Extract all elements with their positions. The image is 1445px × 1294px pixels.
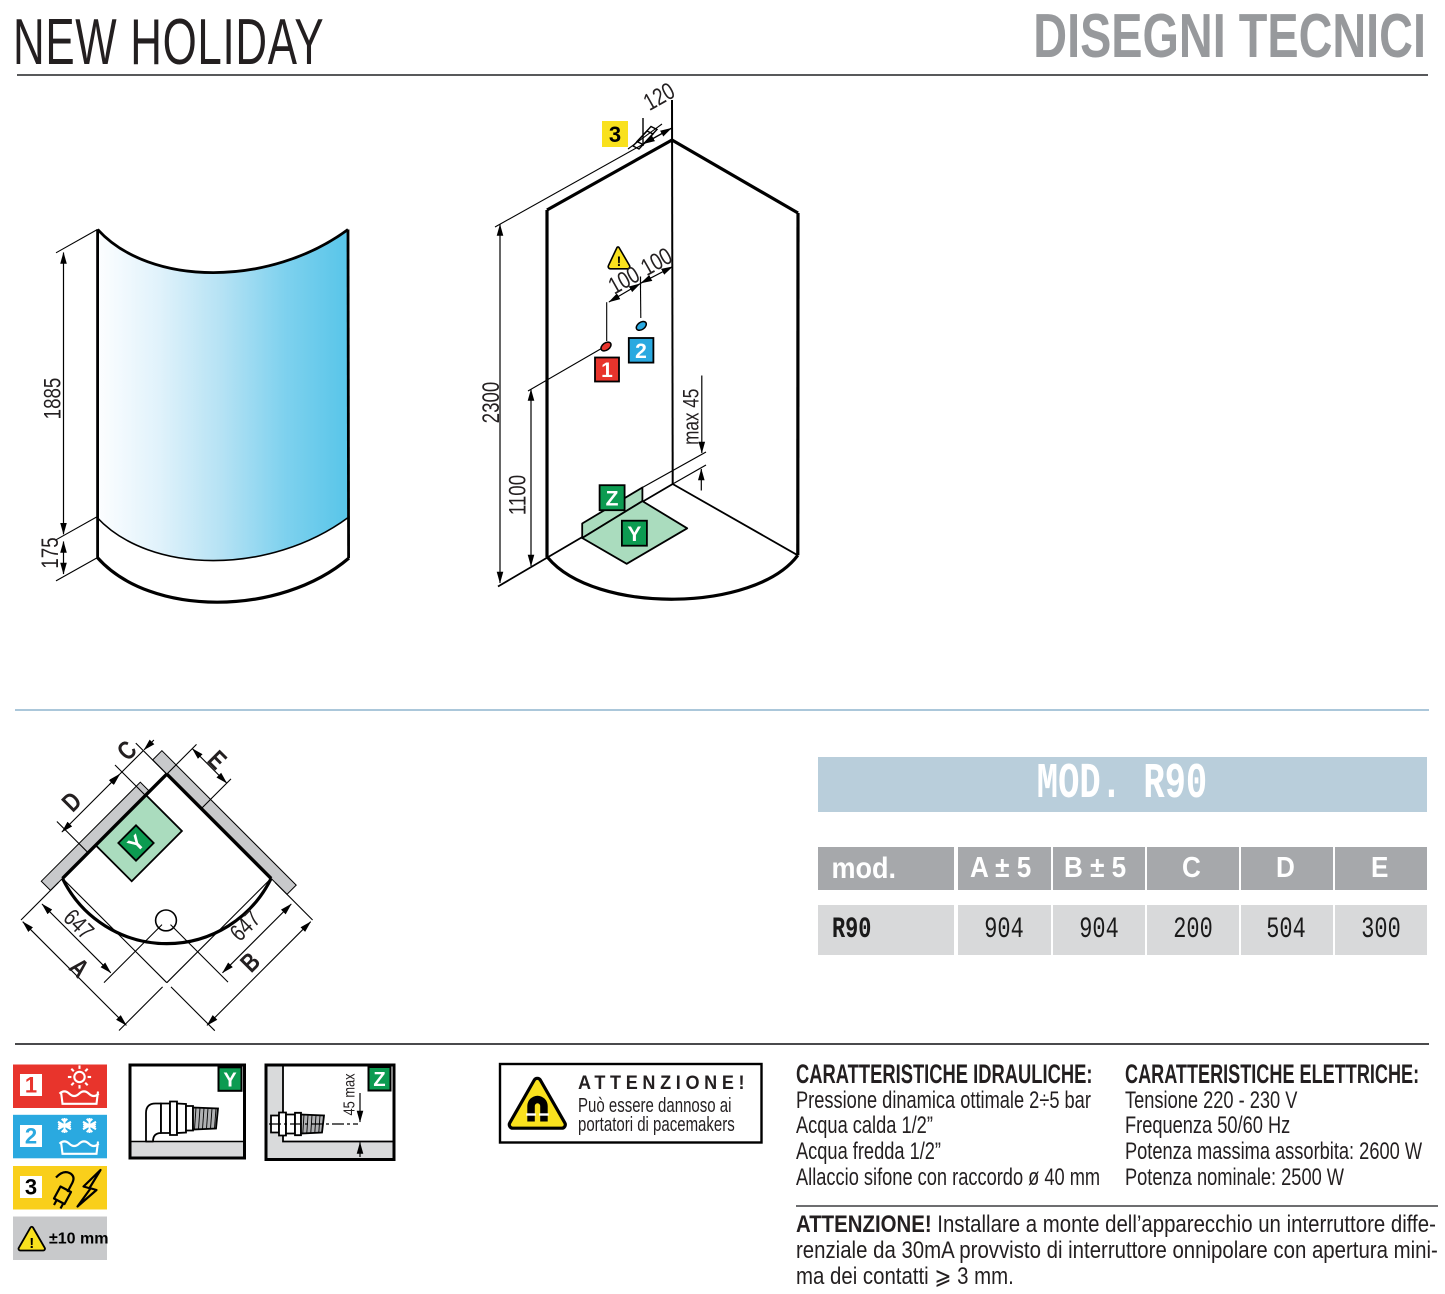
svg-text:1: 1 bbox=[25, 1073, 37, 1098]
svg-text:3: 3 bbox=[25, 1175, 37, 1200]
svg-text:1885: 1885 bbox=[39, 378, 66, 420]
svg-text:Y: Y bbox=[223, 1070, 237, 1092]
svg-text:45 max: 45 max bbox=[341, 1073, 359, 1116]
svg-text:3: 3 bbox=[609, 122, 621, 147]
svg-text:Y: Y bbox=[627, 523, 641, 546]
svg-text:B: B bbox=[235, 947, 266, 978]
svg-text:647: 647 bbox=[58, 904, 99, 945]
svg-text:Z: Z bbox=[373, 1069, 385, 1091]
svg-text:Z: Z bbox=[606, 488, 619, 511]
svg-text:175: 175 bbox=[37, 537, 64, 568]
svg-text:C: C bbox=[111, 735, 142, 766]
svg-text:E: E bbox=[202, 745, 232, 775]
svg-text:!: ! bbox=[29, 1235, 34, 1252]
svg-text:D: D bbox=[56, 786, 87, 817]
svg-text:1100: 1100 bbox=[504, 475, 531, 515]
svg-text:2300: 2300 bbox=[478, 382, 505, 424]
svg-text:120: 120 bbox=[639, 77, 679, 116]
svg-text:±10 mm: ±10 mm bbox=[49, 1231, 108, 1248]
svg-text:647: 647 bbox=[225, 905, 266, 946]
svg-text:max 45: max 45 bbox=[680, 389, 705, 445]
svg-text:1: 1 bbox=[601, 359, 613, 382]
svg-text:100: 100 bbox=[636, 243, 676, 282]
svg-text:2: 2 bbox=[25, 1124, 37, 1149]
svg-text:2: 2 bbox=[635, 340, 647, 363]
